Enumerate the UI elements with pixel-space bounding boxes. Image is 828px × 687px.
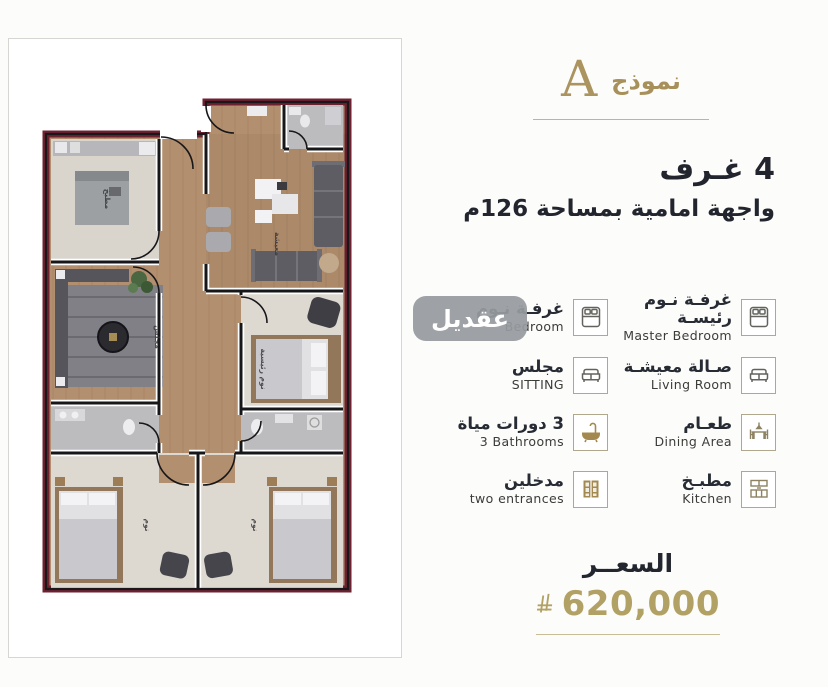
bathroom-left	[51, 405, 159, 453]
feature-ar: مطبـخ	[681, 472, 732, 490]
bathroom-right	[241, 411, 343, 453]
subtitle-block: 4 غـرف واجهة امامية بمساحة 126م	[463, 152, 775, 222]
icon-box	[573, 471, 608, 508]
floor-plan-svg: مطبخ مجلس معيشة نوم رئيسية نوم نوم	[9, 39, 401, 657]
model-letter: A	[561, 54, 597, 104]
floorplan-card: مطبخ مجلس معيشة نوم رئيسية نوم نوم	[8, 38, 402, 658]
title-block: A نموذج	[533, 54, 709, 104]
feature-ar: مجلس	[512, 358, 564, 376]
feature-dining: طعـام Dining Area	[618, 409, 776, 455]
feature-ar: طعـام	[655, 415, 733, 433]
master-label: نوم رئيسية	[259, 348, 268, 389]
feature-living-room: صـالة معيشـة Living Room	[618, 352, 776, 398]
title-divider	[533, 119, 709, 120]
master-bedroom-room	[241, 294, 343, 408]
feature-en: 3 Bathrooms	[458, 435, 564, 449]
feature-ar: صـالة معيشـة	[624, 358, 732, 376]
kitchen-cabinets-icon	[747, 477, 771, 501]
feature-labels: مجلس SITTING	[512, 358, 564, 392]
bedroom-left-room	[51, 453, 198, 589]
sofa-icon	[579, 363, 603, 387]
feature-ar: غرفـة نـوم رئيسـة	[618, 291, 732, 327]
feature-sitting: مجلس SITTING	[416, 352, 608, 398]
icon-box	[741, 414, 776, 451]
bedroom-right-room	[200, 453, 343, 589]
feature-bathrooms: 3 دورات مياة 3 Bathrooms	[416, 409, 608, 455]
feature-labels: 3 دورات مياة 3 Bathrooms	[458, 415, 564, 449]
sitting-label: مجلس	[153, 325, 162, 349]
icon-box	[741, 471, 776, 508]
facade-line: واجهة امامية بمساحة 126م	[463, 196, 775, 222]
feature-en: two entrances	[470, 492, 564, 506]
bedroom-right-label: نوم	[251, 518, 260, 531]
bed-icon	[579, 305, 603, 329]
icon-box	[573, 299, 608, 336]
saudi-riyal-icon	[536, 591, 555, 617]
bedroom-left-label: نوم	[143, 518, 152, 531]
feature-kitchen: مطبـخ Kitchen	[618, 466, 776, 512]
feature-labels: غرفـة نـوم رئيسـة Master Bedroom	[618, 291, 732, 343]
watermark-badge: عقديل	[413, 296, 527, 341]
feature-master-bedroom: غرفـة نـوم رئيسـة Master Bedroom	[618, 294, 776, 340]
living-label: معيشة	[273, 232, 282, 256]
feature-en: Dining Area	[655, 435, 733, 449]
feature-en: Living Room	[624, 378, 732, 392]
feature-labels: مدخلين two entrances	[470, 472, 564, 506]
sofa-icon	[747, 363, 771, 387]
feature-labels: مطبـخ Kitchen	[681, 472, 732, 506]
price-label: السعــر	[536, 549, 720, 578]
dining-table-icon	[747, 420, 771, 444]
feature-ar: 3 دورات مياة	[458, 415, 564, 433]
guest-bathroom	[284, 105, 343, 149]
rooms-count: 4 غـرف	[463, 152, 775, 187]
icon-box	[573, 357, 608, 394]
feature-labels: طعـام Dining Area	[655, 415, 733, 449]
price-block: السعــر 620,000	[536, 549, 720, 635]
flyer-page: مطبخ مجلس معيشة نوم رئيسية نوم نوم A نمو…	[0, 0, 828, 687]
feature-en: Master Bedroom	[618, 329, 732, 343]
feature-ar: مدخلين	[470, 472, 564, 490]
feature-en: SITTING	[512, 378, 564, 392]
model-word: نموذج	[611, 67, 681, 104]
kitchen-label: مطبخ	[103, 189, 112, 210]
price-amount: 620,000	[536, 584, 720, 624]
feature-entrances: مدخلين two entrances	[416, 466, 608, 512]
door-icon	[579, 477, 603, 501]
icon-box	[741, 357, 776, 394]
feature-labels: صـالة معيشـة Living Room	[624, 358, 732, 392]
icon-box	[573, 414, 608, 451]
feature-en: Kitchen	[681, 492, 732, 506]
watermark-text: عقديل	[431, 305, 509, 333]
icon-box	[741, 299, 776, 336]
sitting-room	[55, 269, 163, 388]
bathtub-icon	[579, 420, 603, 444]
bed-icon	[747, 305, 771, 329]
price-value: 620,000	[562, 584, 720, 624]
hall-cabinet	[247, 106, 267, 116]
